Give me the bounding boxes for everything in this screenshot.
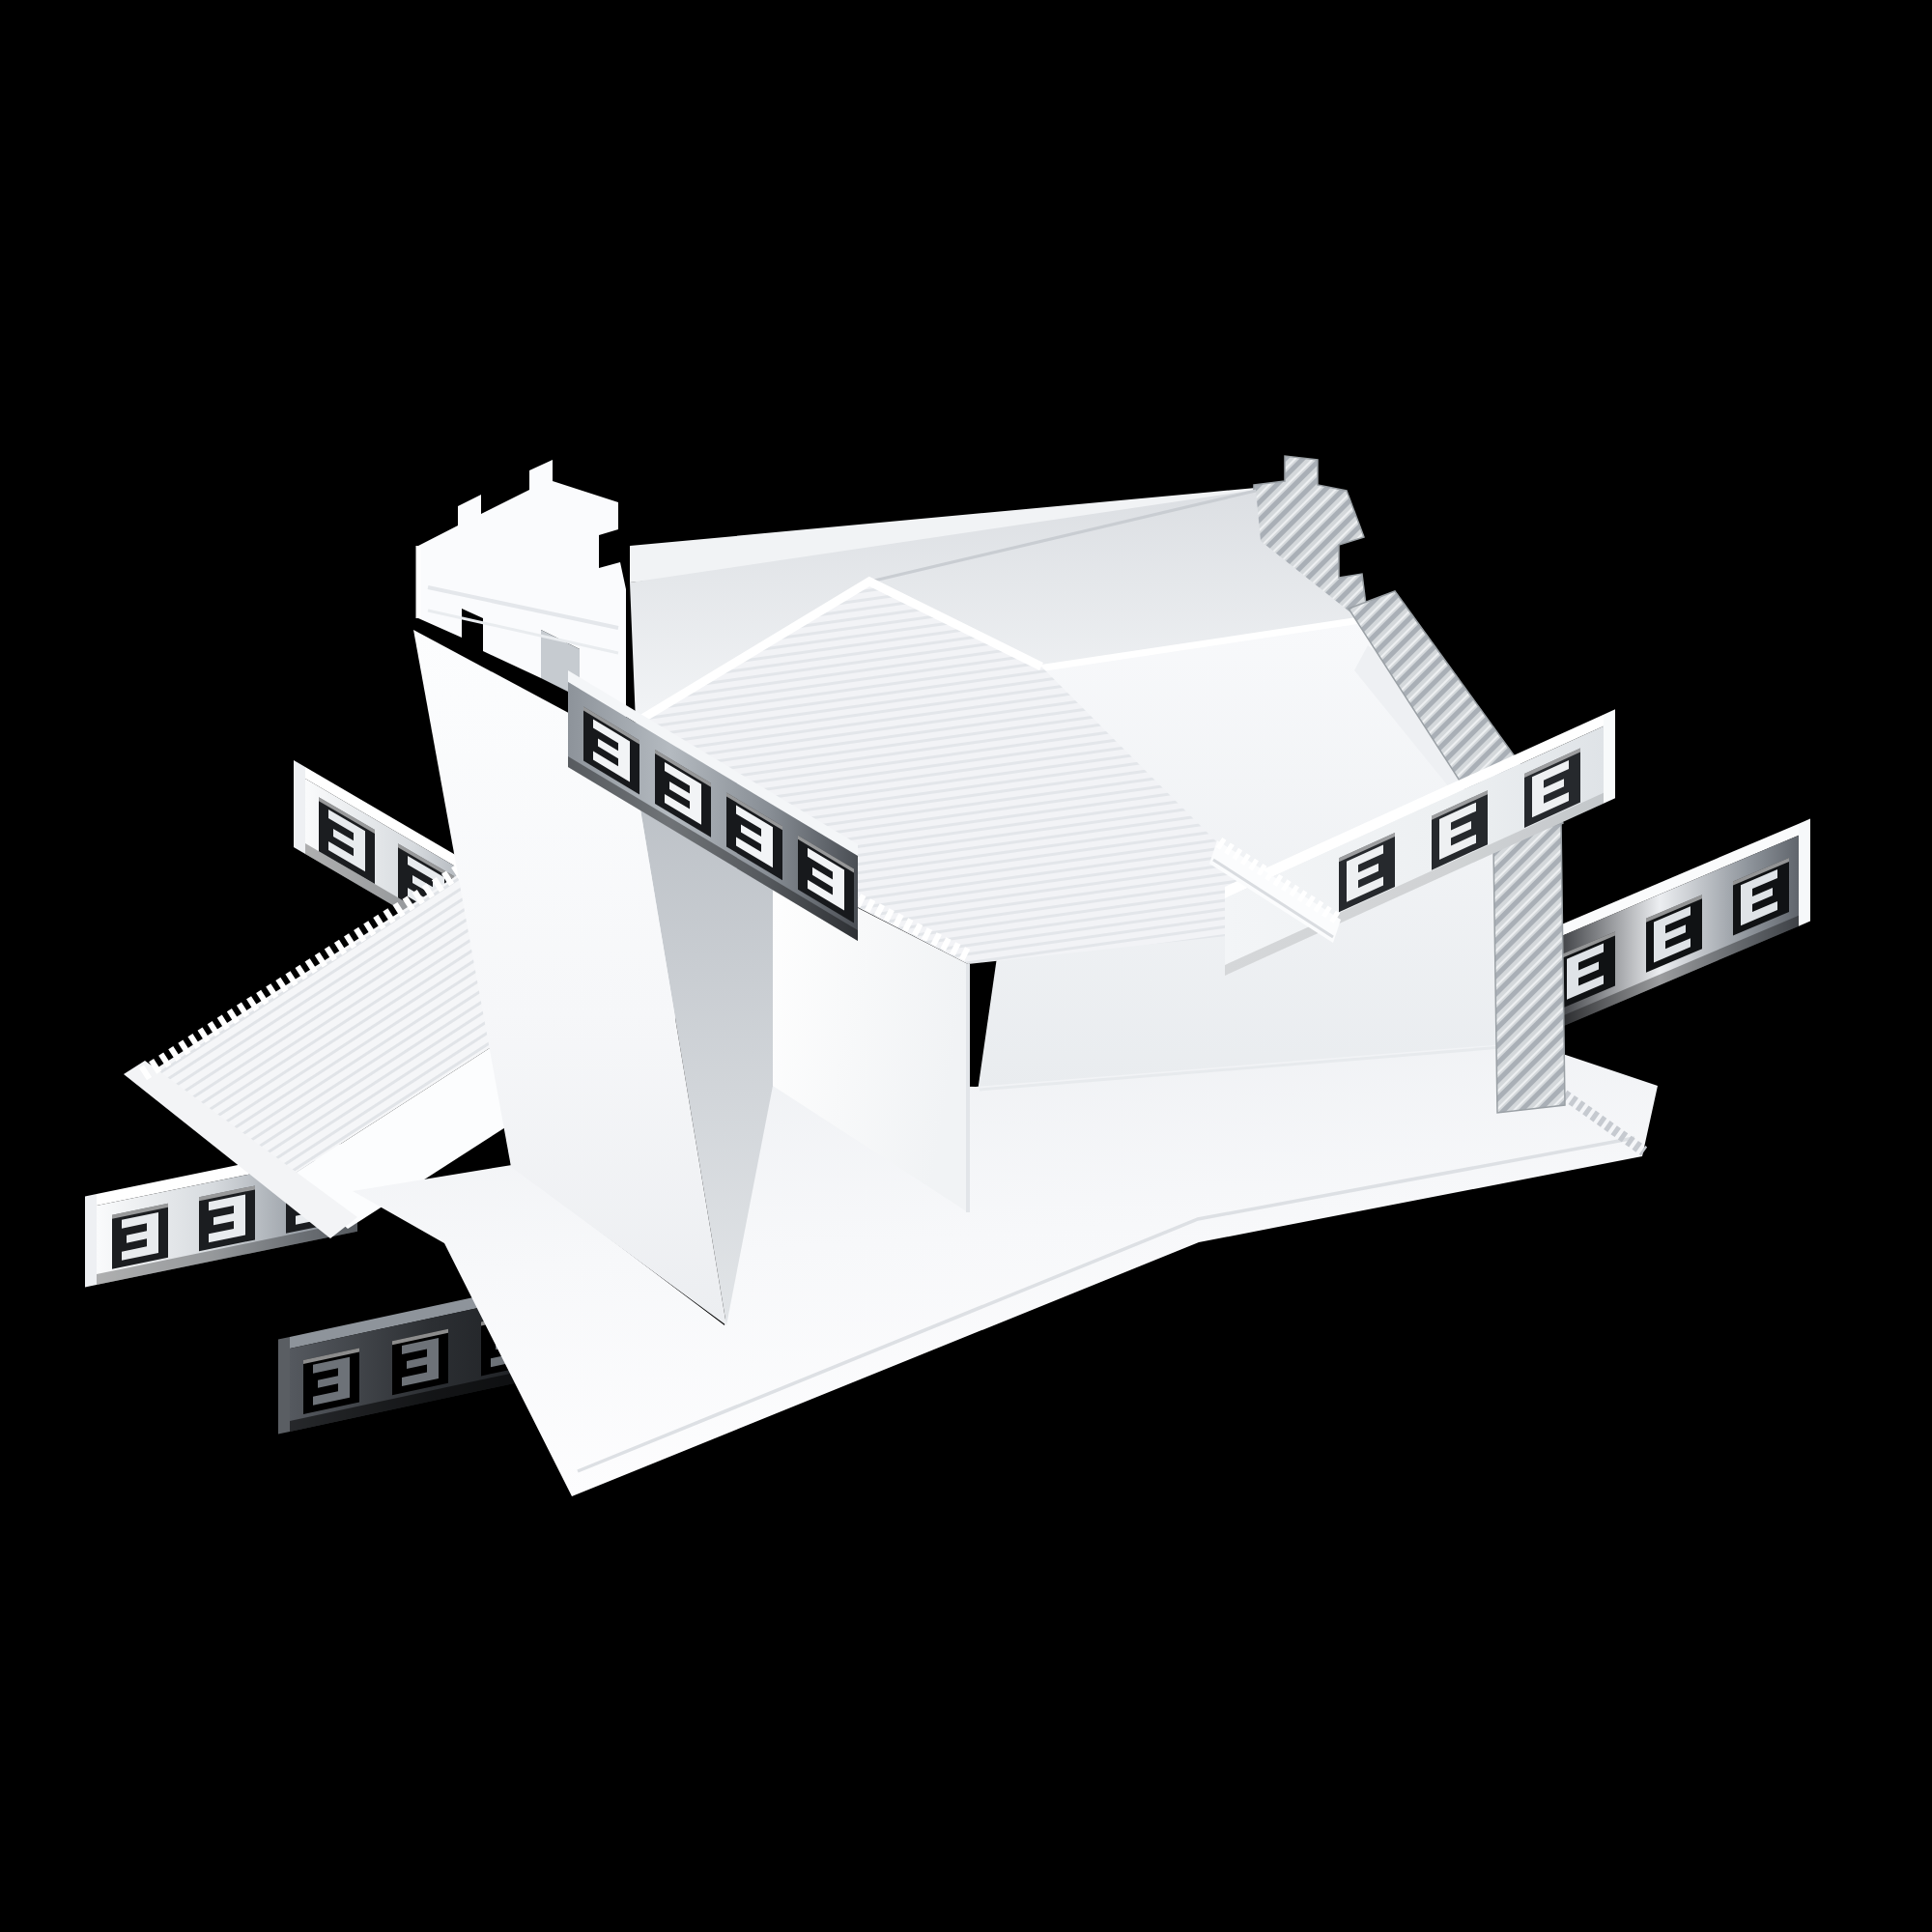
product-render [0,0,1932,1932]
strap-e-cutout [112,1204,168,1269]
right-cut-front-wall [1493,823,1565,1113]
strap-e-cutout [199,1185,255,1251]
product-photo-stage [0,0,1932,1932]
